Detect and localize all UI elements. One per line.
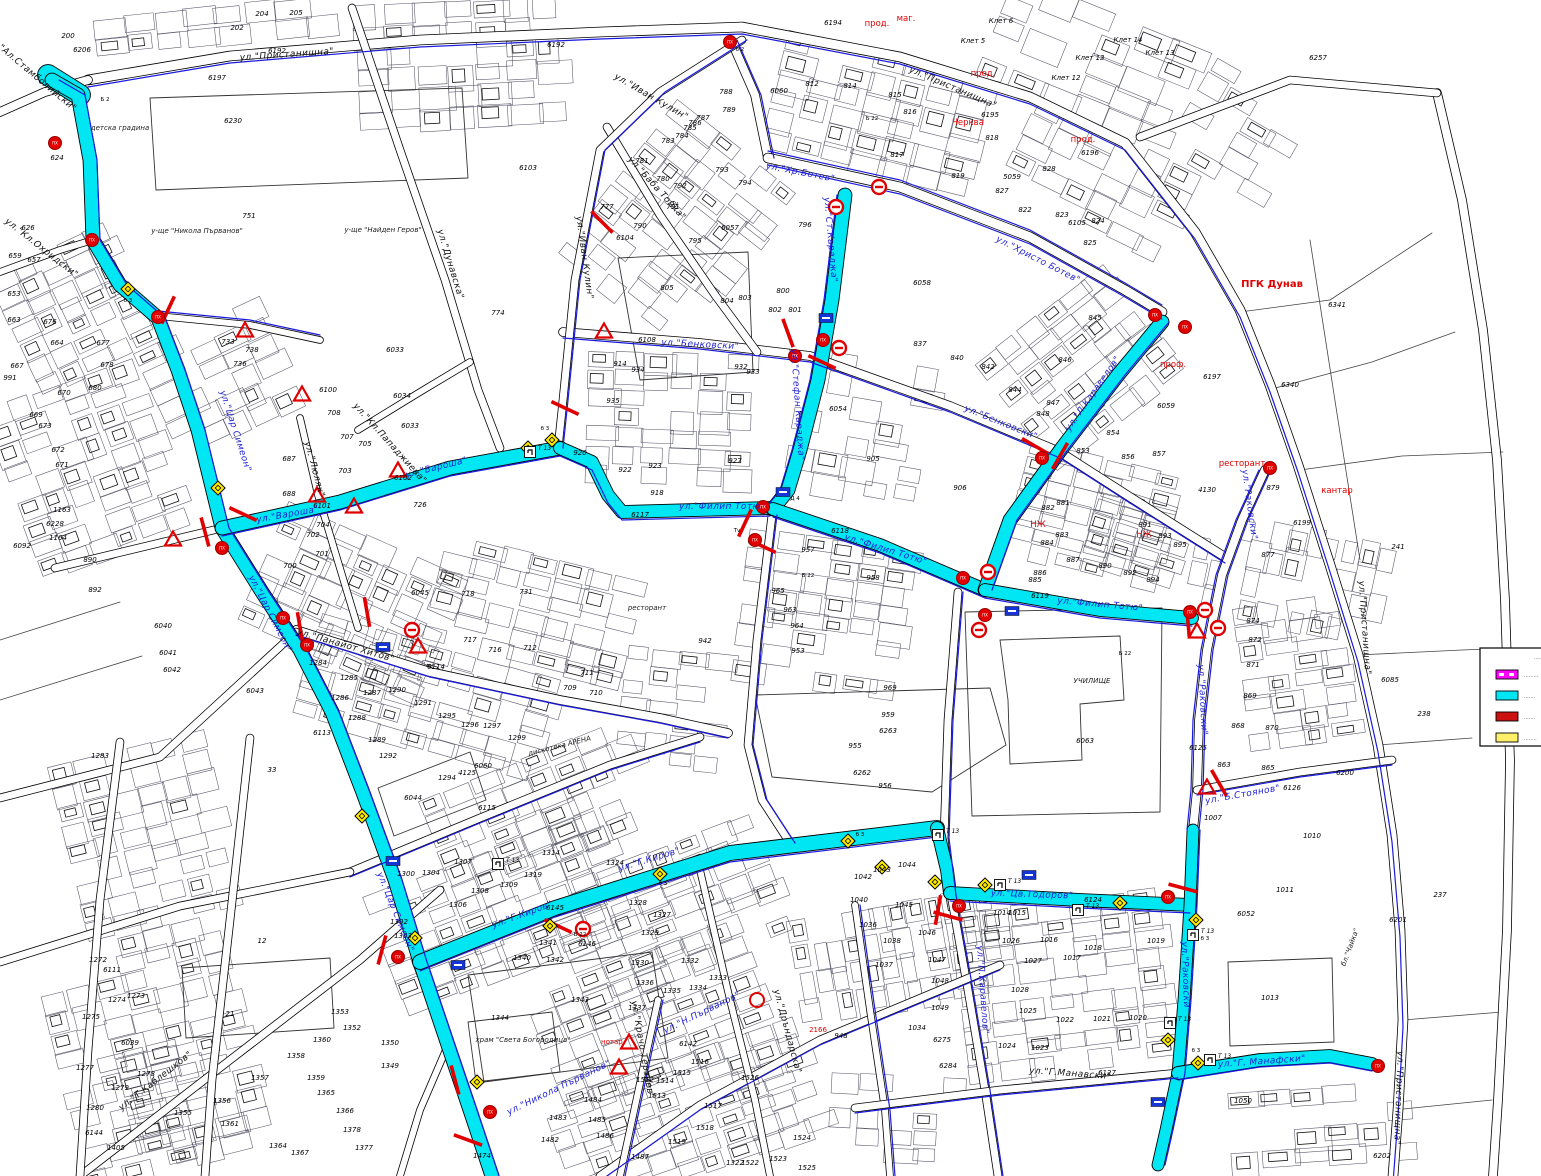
building [478,872,493,885]
t13-box [1165,1018,1176,1029]
parcel [829,560,860,581]
parcel [914,1131,937,1146]
hydrant-text: ПХ [1152,313,1158,318]
parcel [1135,537,1171,564]
legend-magenta-dash [1499,673,1504,676]
hydrant-text: ПХ [1165,895,1171,900]
parcel-number: 923 [648,462,661,470]
parcel [1286,530,1308,556]
parcel [984,939,1002,960]
building [776,187,788,199]
parcel [586,425,619,441]
no-entry-icon [872,180,886,194]
road-casing-bl-1 [0,632,296,798]
parcel [1080,76,1116,104]
building [1364,1128,1379,1140]
parcel-number: 796 [798,221,812,229]
t13-label: Т 13 [1086,903,1099,910]
flag-dash [454,964,462,966]
parcel [1358,1122,1387,1146]
building [772,593,787,605]
parcel-number: 1275 [82,1013,100,1021]
parcel [275,17,309,40]
parcel-number: 6263 [879,727,897,735]
building [166,1025,181,1039]
parcel [913,1113,937,1129]
parcel [671,373,692,389]
building [1272,680,1283,688]
parcel [816,968,834,993]
parcel-number: 6340 [1281,381,1299,389]
parcel [559,1142,590,1169]
no-entry-icon [981,565,995,579]
hydrant-text: ПХ [155,315,161,320]
street-name-label: ул."Цар Симеон" [217,388,253,473]
parcel-number: 805 [660,284,674,292]
parcel-number: 731 [519,588,532,596]
parcel-number: 1335 [663,987,681,995]
parcel [138,430,173,460]
building [733,976,750,991]
parcel [506,948,540,976]
building [477,4,495,13]
building [85,780,101,793]
building [101,411,115,424]
building [112,428,127,441]
building [356,701,372,712]
parcel-number: 1018 [1084,944,1102,952]
building [179,944,193,958]
parcel-number: 933 [746,368,759,376]
parcel [450,106,475,130]
parcel-number: 1025 [1019,1007,1037,1015]
building [349,575,363,588]
parcel-number: 6044 [404,794,422,802]
parcel [894,484,916,501]
hydrant-text: ПХ [1187,610,1193,615]
parcel [992,1001,1017,1024]
parcel-number: 802 [768,306,782,314]
parcel [845,437,869,458]
parcel-number: 1044 [898,861,916,869]
parcel [679,651,710,667]
t13-box [1188,930,1199,941]
map-canvas[interactable]: ПХПХПХПХПХПХПХПХПХПХПХПХПХПХПХПХПХПХПХПХ… [0,0,1541,1176]
parcel-number: 1286 [331,694,349,702]
parcel-number: 6040 [154,622,172,630]
building [1337,725,1354,734]
parcel-number: 1343 [571,996,589,1004]
parcel-number: 991 [3,374,16,382]
hydrant-text: ПХ [280,616,286,621]
flag-dash [822,317,830,319]
parcel [727,414,751,431]
parcel-number: Клет 13 [1076,54,1105,62]
parcel-number: 1516 [691,1058,709,1066]
parcel-number: 703 [338,467,351,475]
parcel [458,595,486,620]
parcel [27,290,56,315]
parcel-number: 1163 [53,506,71,514]
parcel-number: 1007 [1204,814,1222,822]
parcel [514,610,549,637]
parcel-number: 1010 [1303,832,1321,840]
parcel [771,181,796,205]
building [64,808,77,817]
parcel [1326,684,1356,705]
building [1308,730,1320,740]
parcel-number: 6111 [103,966,121,974]
parcel-number: 1350 [381,1039,399,1047]
parcel-number: 6045 [411,589,429,597]
parcel [507,104,543,126]
flag-marker-icon [1005,607,1019,616]
parcel-number: 958 [866,574,880,582]
parcel-number: 892 [88,586,102,594]
parcel-number: 6117 [631,511,649,519]
t13-label: Т 13 [506,857,519,864]
parcel-number: 1289 [368,736,386,744]
parcel-number: 853 [1076,447,1089,455]
parcel-number: 1327 [653,911,671,919]
parcel [1269,522,1293,552]
parcel [1187,561,1207,587]
red-annotation: ПГК Дунав [1241,279,1303,290]
building [796,947,806,959]
parcel-number: 1284 [309,659,327,667]
parcel-number: 738 [245,346,259,354]
parcel [1358,540,1381,569]
parcel [418,66,447,86]
building [98,980,115,992]
parcel [552,833,589,862]
parcel [831,1073,859,1095]
parcel-number: 1277 [76,1064,94,1072]
parcel [680,932,706,956]
hydrant-marker-icon: ПХ [1162,891,1175,904]
parcel-number: Клет 12 [1052,74,1082,82]
building [731,394,743,404]
parcel-number: 1333 [709,974,727,982]
parcel-number: 906 [953,484,967,492]
parcel-number: 890 [1098,562,1112,570]
parcel-number: 736 [233,360,247,368]
parcel [669,753,691,768]
parcel-number: 803 [738,294,751,302]
diamond-outer [470,1075,484,1089]
parcel-number: 1341 [539,939,557,947]
parcel-number: 1526 [741,1074,759,1082]
parcel-number: 709 [563,684,577,692]
parcel [1258,1089,1291,1106]
parcel-number: 1344 [491,1014,509,1022]
parcel-number: 847 [1046,399,1060,407]
hydrant-marker-icon: ПХ [979,609,992,622]
parcel-number: 1042 [854,873,872,881]
parcel [132,497,166,522]
parcel-number: 1319 [524,871,542,879]
building [70,845,86,857]
parcel [238,606,265,629]
parcel [1119,185,1154,218]
parcel-number: 871 [1246,661,1259,669]
marker-code: Б 22 [1119,651,1132,657]
parcel-number: 815 [888,91,902,99]
parcel-block [827,1072,966,1167]
parcel-number: 6146 [578,940,596,948]
building [276,394,293,410]
hydrant-text: ПХ [960,576,966,581]
parcel [160,1126,186,1145]
t13-box [933,830,944,841]
parcel-number: 863 [1217,761,1230,769]
hydrant-text: ПХ [219,546,225,551]
parcel-number: 1329 [641,929,659,937]
parcel-number: 884 [1040,539,1053,547]
building [619,412,631,421]
street-name-label: ул."Никола Първанов" [505,1059,613,1119]
parcel [804,1109,839,1133]
parcel-number: 1524 [793,1134,811,1142]
block-outline [150,88,468,190]
building [1310,619,1323,633]
parcel-number: 883 [1055,531,1068,539]
building [731,1144,749,1157]
parcel [143,924,175,951]
parcel-number: 893 [1158,532,1171,540]
building [1173,45,1196,63]
parcel-number: 659 [8,252,22,260]
t13-label: Т 13 [1201,928,1214,935]
parcel-number: 6197 [208,74,226,82]
building [121,937,136,950]
building [120,532,132,542]
parcel [773,552,799,575]
building [1165,62,1184,78]
t13-box [525,447,536,458]
parcel-number: 793 [715,166,728,174]
parcel-number: 1515 [673,1069,691,1077]
parcel-number: 6194 [824,19,842,27]
parcel [983,945,1014,962]
flag-dash [1025,874,1033,876]
parcel-number: 879 [1266,484,1280,492]
parcel [1263,129,1297,158]
building [424,112,439,124]
building [430,649,443,660]
parcel-number: 955 [848,742,862,750]
parcel [1072,0,1115,31]
parcel [676,685,706,702]
parcel [829,1107,851,1127]
parcel-number: 801 [788,306,801,314]
valve-icon [781,318,795,347]
t13-marker: Т 13 [493,857,520,870]
building [582,973,598,986]
hydrant-text: ПХ [89,238,95,243]
building [887,571,903,582]
parcel [121,970,147,992]
parcel [36,468,65,495]
red-annotation: нотар. [601,1038,625,1046]
parcel-number: 6257 [1309,54,1327,62]
parcel-number: 678 [100,361,114,369]
parcel [163,1021,193,1048]
parcel [124,13,155,33]
building [803,99,817,113]
parcel-number: 948 [834,1032,848,1040]
parcel-number: 1484 [584,1096,602,1104]
parcel-number: 887 [1066,556,1080,564]
building [586,994,606,1010]
parcel-number: 6052 [1237,910,1255,918]
t13-label: Т 13 [946,828,959,835]
parcel [541,617,568,641]
parcel [727,815,753,836]
facility-label: бл."Чайка" [1340,927,1361,967]
parcel-number: 1308 [471,887,489,895]
parcel [766,916,792,938]
parcel-number: 6108 [638,336,656,344]
building [653,671,667,681]
parcel-number: 870 [1265,724,1279,732]
parcel [1084,1027,1119,1046]
diamond-marker-icon [470,1075,484,1089]
parcel-number: 1043 [873,866,891,874]
ring-marker-icon [750,993,764,1007]
parcel-number: 5059 [1003,173,1021,181]
building [1014,74,1035,89]
parcel [1271,689,1306,714]
parcel [655,940,684,962]
building [359,561,371,572]
parcel-number: 827 [995,187,1009,195]
road-surface-right-road [1437,93,1510,1176]
marker-code: Б 22 [802,573,815,579]
parcel-number: 837 [913,340,927,348]
parcel [132,1009,165,1034]
building [1070,334,1086,349]
parcel-number: 890 [83,556,97,564]
building [796,142,811,152]
parcel [1060,179,1095,210]
marker-code: б 3 [124,298,133,304]
building [46,493,59,505]
building [121,1059,137,1073]
parcel-number: 6104 [616,234,634,242]
parcel [588,244,615,270]
building [1294,1092,1310,1101]
parcel-number: 1322 [726,1159,744,1167]
parcel [799,998,822,1023]
parcel-number: 934 [631,366,644,374]
marker-code: б 3 [659,881,668,887]
parcel [836,989,857,1020]
parcel [165,508,190,532]
parcel-number: 856 [1121,453,1135,461]
marker-code: Б 22 [866,116,879,122]
t13-label: Т 13 [1008,878,1021,885]
block-outline [965,608,1162,816]
building [1268,1152,1287,1162]
triangle-warning-icon [611,1060,627,1074]
field-boundary [0,602,120,640]
parcel-number: 200 [61,32,75,40]
parcel-number: 1349 [381,1062,399,1070]
legend: ···································· [1480,648,1541,746]
parcel [1240,567,1260,598]
flag-marker-icon [819,314,833,323]
parcel-number: 6262 [853,769,871,777]
parcel-number: 712 [523,644,537,652]
parcel [1295,669,1323,685]
parcel [1017,316,1050,349]
parcel [1020,362,1053,394]
parcel-number: 676 [43,318,57,326]
building [482,107,499,119]
marker-code: Б 22 [574,932,587,938]
parcel [1240,117,1276,147]
parcel-number: 1306 [449,901,467,909]
parcel-number: 1405 [107,1144,125,1152]
parcel [810,472,846,501]
parcel-number: 1028 [1011,986,1029,994]
parcel [570,624,604,651]
flag-marker-icon [776,488,790,497]
parcel-number: 6033 [401,422,419,430]
parcel-number: 1020 [1129,1014,1147,1022]
parcel [166,794,201,821]
building [452,69,465,82]
legend-red-label: ······· [1524,716,1536,722]
parcel-number: 1336 [636,979,654,987]
hydrant-marker-icon: ПХ [1184,606,1197,619]
parcel-number: 1299 [508,734,526,742]
parcel-number: 869 [1243,692,1257,700]
parcel-number: 624 [50,154,63,162]
building [201,1039,213,1049]
parcel-number: 874 [1246,617,1259,625]
parcel-number: 792 [673,182,687,190]
parcel-number: 1026 [1002,937,1020,945]
hydrant-marker-icon: ПХ [724,36,737,49]
parcel [1029,328,1063,360]
building [100,474,118,489]
parcel [1094,174,1130,205]
parcel-number: 1022 [1056,1016,1074,1024]
parcel [528,555,557,575]
parcel-number: 882 [1041,504,1055,512]
parcel-number: 12 [258,937,267,945]
parcel-number: 6063 [1076,737,1094,745]
parcel-number: 701 [315,550,328,558]
parcel-number: 816 [903,108,917,116]
parcel [698,450,731,472]
parcel [761,644,792,668]
parcel-number: 1364 [269,1142,287,1150]
parcel [75,269,104,297]
parcel-number: 6114 [427,663,445,671]
parcel-number: 953 [791,647,804,655]
parcel-number: 1019 [1147,937,1165,945]
building [586,592,603,607]
parcel [1082,988,1117,1011]
pipe-line-filip-totyu-6118 [773,517,985,598]
parcel [180,855,204,874]
parcel-number: 969 [883,684,897,692]
parcel-number: 1294 [438,774,456,782]
parcel-number: 204 [255,10,268,18]
